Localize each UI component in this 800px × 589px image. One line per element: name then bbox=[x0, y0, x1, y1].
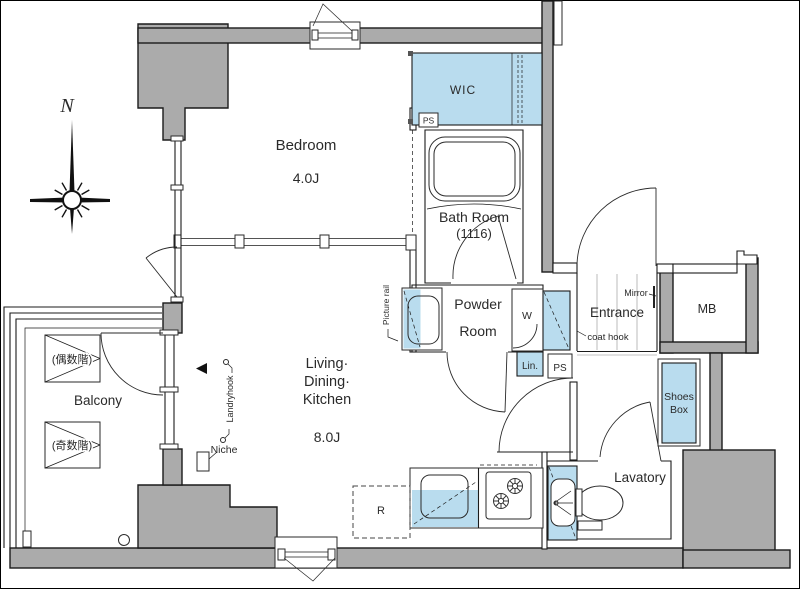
picture-rail-label: Picture rail bbox=[381, 285, 391, 325]
ldk-label-2: Dining· bbox=[304, 374, 350, 390]
niche-label: Niche bbox=[211, 444, 238, 456]
powder-room-label-2: Room bbox=[459, 323, 496, 339]
bedroom-label: Bedroom bbox=[276, 137, 337, 154]
linen-label: Lin. bbox=[522, 361, 538, 372]
bathroom-size-label: (1116) bbox=[456, 226, 492, 241]
balcony-label: Balcony bbox=[74, 393, 122, 408]
wic-label: WIC bbox=[450, 83, 476, 97]
ldk-label-1: Living· bbox=[306, 356, 349, 372]
ps-lower-label: PS bbox=[553, 363, 567, 374]
ldk-label-3: Kitchen bbox=[303, 392, 351, 408]
ldk-size-label: 8.0J bbox=[314, 429, 340, 445]
laundry-hook-label: Landryhook bbox=[225, 375, 235, 423]
kitchen-counter bbox=[410, 465, 543, 528]
mirror-label: Mirror bbox=[624, 288, 648, 298]
bathroom-label: Bath Room bbox=[439, 209, 509, 225]
powder-room-label-1: Powder bbox=[454, 296, 502, 312]
compass-north-label: N bbox=[59, 95, 75, 117]
burner-icon bbox=[508, 479, 523, 494]
washstand bbox=[402, 288, 442, 350]
odd-floor-label: (奇数階) bbox=[52, 438, 92, 452]
coat-hook-label: coat hook bbox=[587, 332, 628, 343]
burner-icon bbox=[494, 494, 509, 509]
entrance-label: Entrance bbox=[590, 305, 644, 320]
even-floor-label: (偶数階) bbox=[52, 352, 92, 366]
mb-label: MB bbox=[698, 302, 717, 316]
floor-plan: N Bedroom 4.0J WIC PS Bath Room (1116) P… bbox=[0, 0, 800, 589]
washer-label: W bbox=[522, 310, 532, 322]
shoes-box-label-2: Box bbox=[670, 404, 689, 416]
image-border bbox=[1, 1, 800, 589]
lavatory-label: Lavatory bbox=[614, 470, 666, 485]
bedroom-size-label: 4.0J bbox=[293, 170, 319, 186]
ps-upper-label: PS bbox=[423, 116, 435, 126]
refrigerator-label: R bbox=[377, 505, 385, 517]
shoes-box-label-1: Shoes bbox=[664, 391, 694, 403]
